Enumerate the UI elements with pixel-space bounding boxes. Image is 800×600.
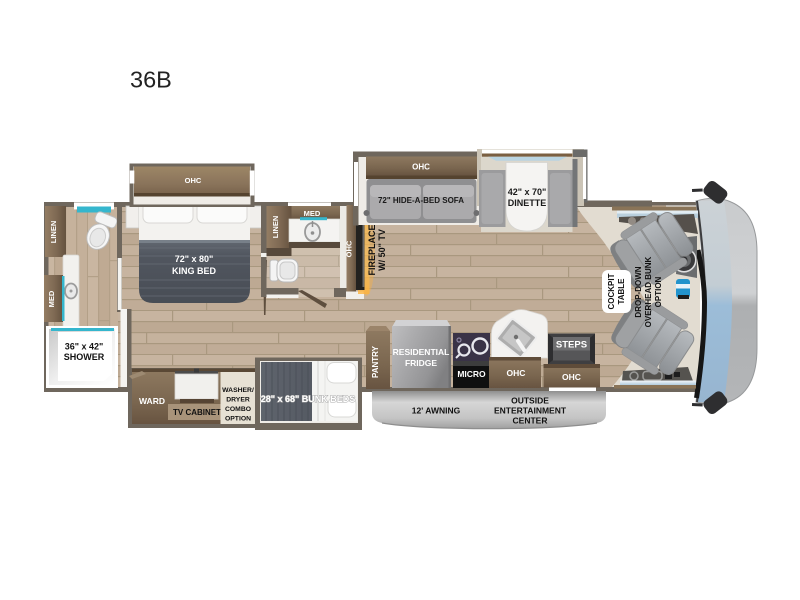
svg-text:FRIDGE: FRIDGE: [405, 358, 437, 368]
svg-text:LINEN: LINEN: [49, 221, 58, 244]
svg-text:12' AWNING: 12' AWNING: [412, 406, 461, 416]
svg-text:W/ 50" TV: W/ 50" TV: [377, 229, 387, 271]
svg-text:MED: MED: [47, 290, 56, 307]
svg-text:OHC: OHC: [185, 176, 202, 185]
svg-text:72" HIDE-A-BED SOFA: 72" HIDE-A-BED SOFA: [378, 196, 464, 205]
svg-text:MICRO: MICRO: [457, 369, 486, 379]
svg-text:36B: 36B: [130, 67, 172, 93]
svg-text:COCKPIT: COCKPIT: [607, 273, 616, 309]
svg-text:OHC: OHC: [562, 372, 581, 382]
svg-text:SHOWER: SHOWER: [64, 352, 105, 362]
svg-text:DINETTE: DINETTE: [508, 198, 547, 208]
svg-text:DRYER: DRYER: [226, 397, 250, 404]
svg-text:OHC: OHC: [345, 240, 354, 257]
svg-text:STEPS: STEPS: [556, 340, 587, 351]
svg-text:28" x 68" BUNK BEDS: 28" x 68" BUNK BEDS: [261, 394, 356, 404]
svg-text:PANTRY: PANTRY: [371, 345, 380, 378]
svg-text:MED: MED: [304, 209, 321, 218]
svg-text:OHC: OHC: [507, 368, 526, 378]
svg-text:TABLE: TABLE: [617, 278, 626, 305]
svg-text:OUTSIDE: OUTSIDE: [511, 396, 549, 406]
svg-text:OHC: OHC: [412, 163, 430, 172]
svg-text:WARD: WARD: [139, 396, 165, 406]
svg-text:TV CABINET: TV CABINET: [173, 408, 221, 417]
svg-text:DROP-DOWN: DROP-DOWN: [634, 266, 643, 317]
svg-text:OPTION: OPTION: [654, 276, 663, 307]
svg-text:COMBO: COMBO: [225, 406, 251, 413]
svg-text:72" x 80": 72" x 80": [175, 254, 214, 264]
svg-text:RESIDENTIAL: RESIDENTIAL: [393, 347, 450, 357]
svg-text:CENTER: CENTER: [513, 416, 548, 426]
svg-text:OVERHEAD BUNK: OVERHEAD BUNK: [644, 256, 653, 327]
svg-text:36" x 42": 36" x 42": [65, 342, 104, 352]
svg-text:WASHER/: WASHER/: [222, 387, 254, 394]
svg-text:LINEN: LINEN: [271, 216, 280, 239]
svg-text:FIREPLACE: FIREPLACE: [367, 224, 377, 275]
svg-text:ENTERTAINMENT: ENTERTAINMENT: [494, 406, 567, 416]
svg-text:KING BED: KING BED: [172, 266, 217, 276]
svg-text:OPTION: OPTION: [225, 416, 251, 423]
svg-text:42" x 70": 42" x 70": [508, 187, 547, 197]
